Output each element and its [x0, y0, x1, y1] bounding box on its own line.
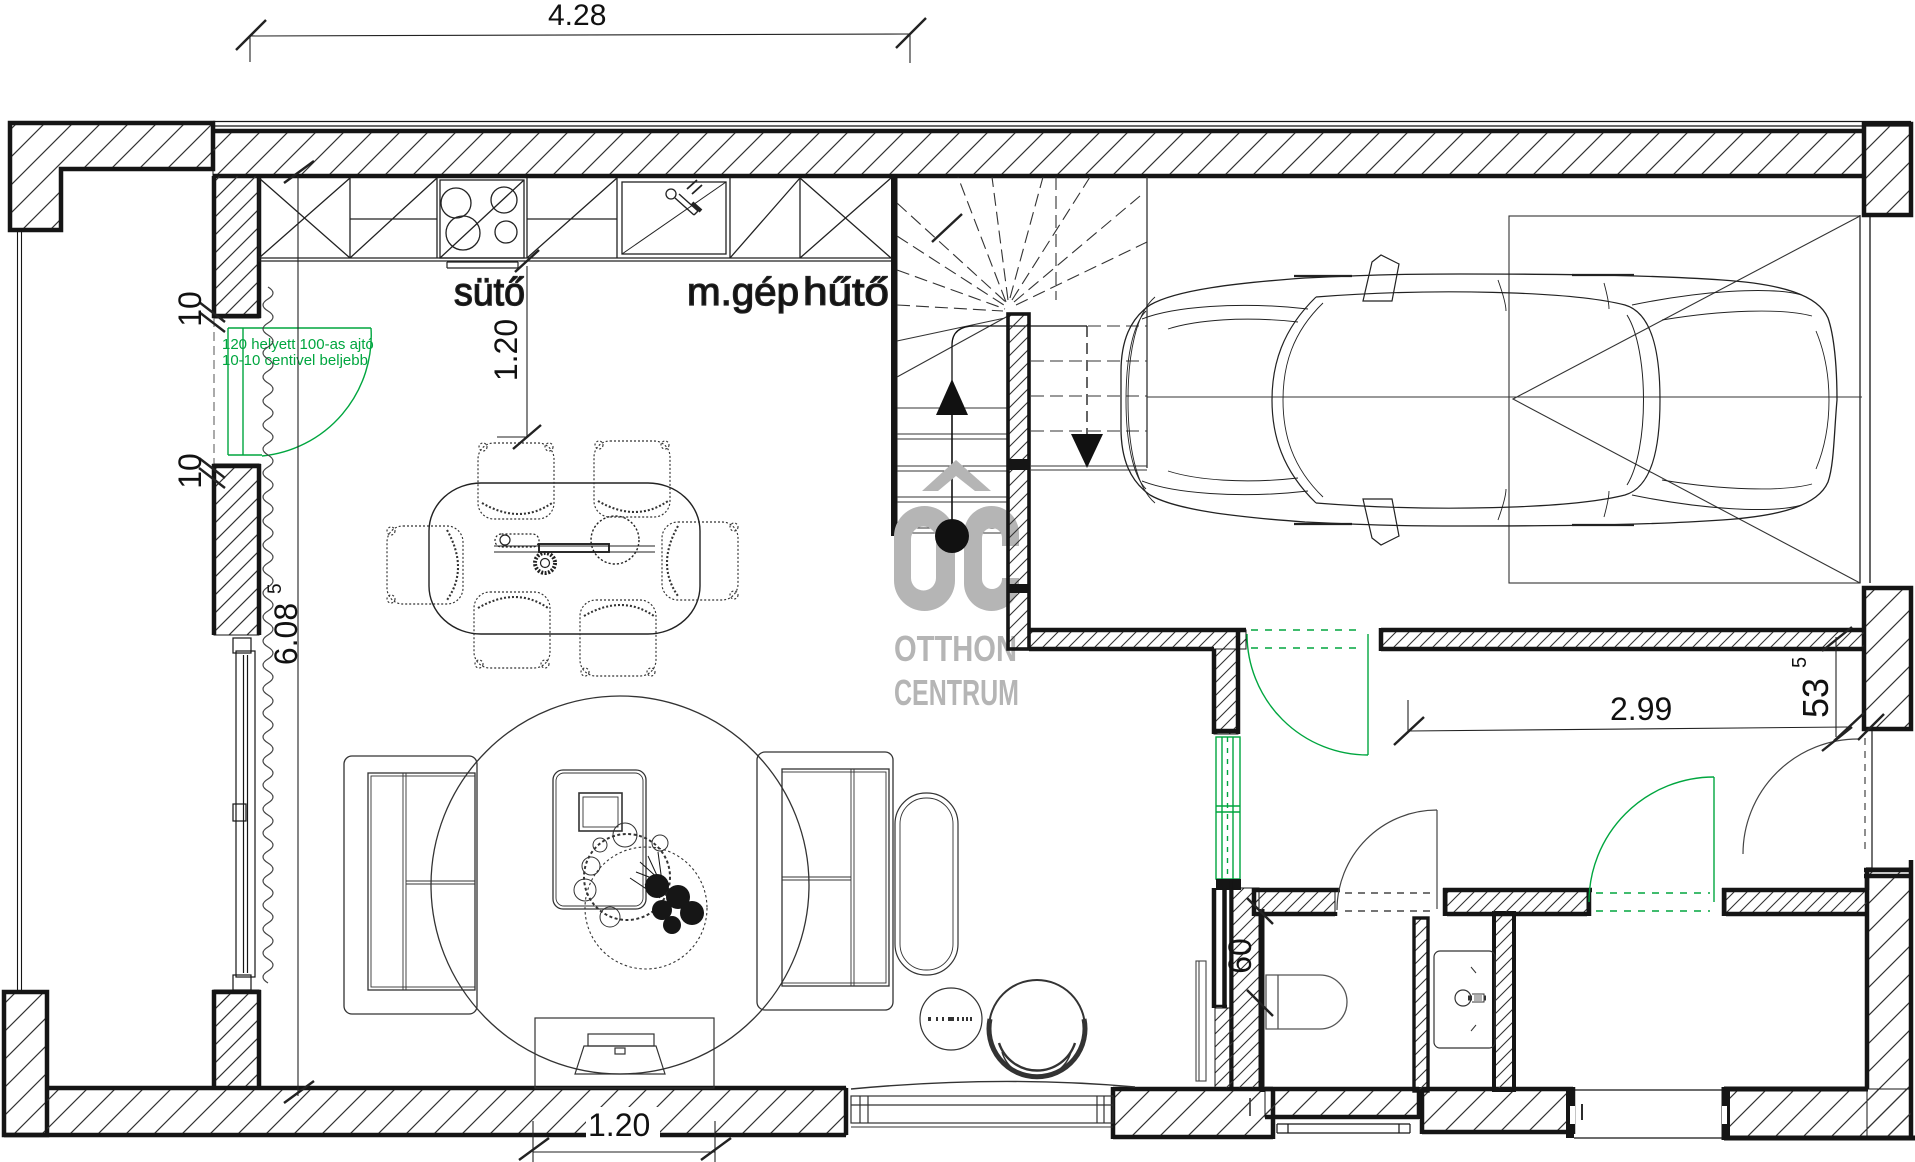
svg-text:CENTRUM: CENTRUM [894, 672, 1019, 713]
svg-text:5: 5 [265, 583, 286, 594]
svg-text:60: 60 [1222, 938, 1258, 974]
svg-text:10: 10 [172, 453, 208, 489]
svg-text:10-10 centivel beljebb: 10-10 centivel beljebb [222, 352, 368, 369]
svg-text:OTTHON: OTTHON [894, 628, 1017, 669]
svg-text:4.28: 4.28 [548, 0, 606, 32]
svg-text:6.08: 6.08 [268, 603, 304, 665]
svg-text:1.20: 1.20 [488, 319, 524, 381]
svg-text:1.20: 1.20 [588, 1107, 650, 1143]
svg-text:10: 10 [172, 291, 208, 327]
svg-text:m.gép: m.gép [687, 271, 799, 314]
svg-text:5: 5 [1789, 657, 1811, 668]
svg-text:sütő: sütő [454, 271, 525, 314]
svg-text:53: 53 [1795, 678, 1836, 718]
svg-text:2.99: 2.99 [1610, 691, 1672, 727]
svg-text:hűtő: hűtő [803, 271, 889, 314]
